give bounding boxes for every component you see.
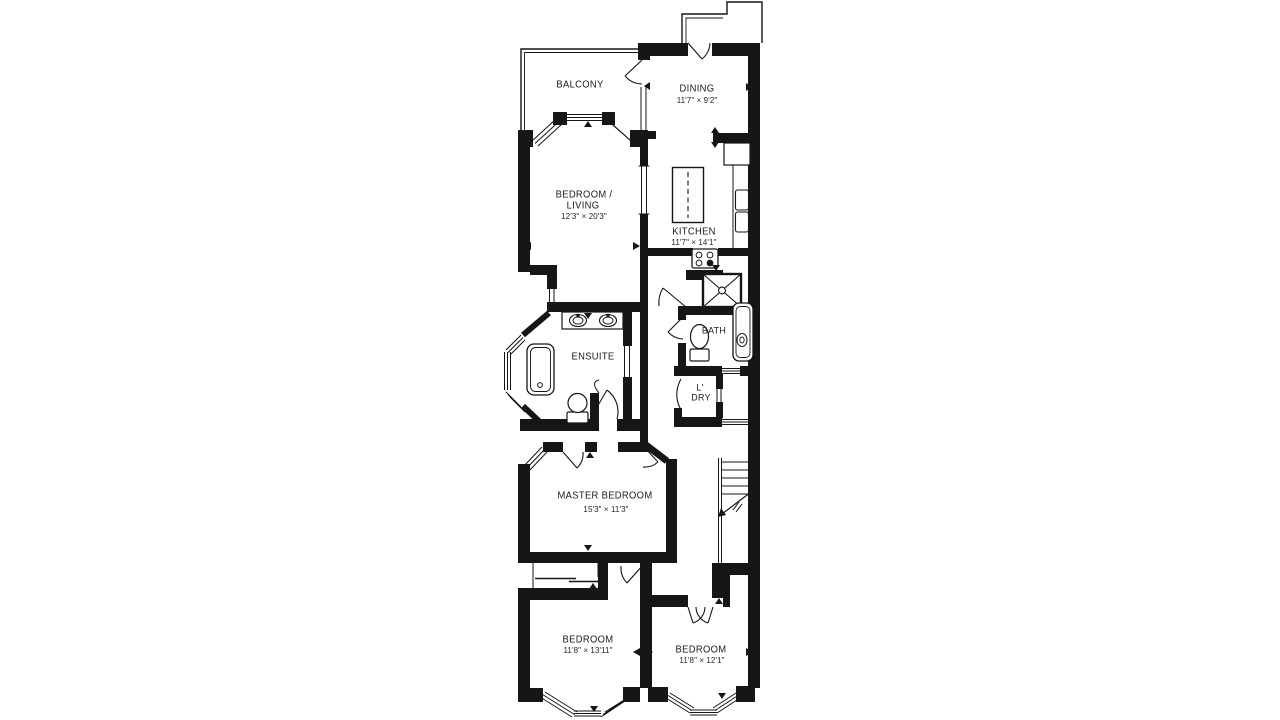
refrigerator: [724, 143, 750, 165]
room-label-ensuite: ENSUITE: [571, 352, 614, 363]
room-label-bath: BATH: [702, 326, 726, 337]
ensuite-vanity: [562, 312, 623, 329]
floor-plan: BALCONY DINING 11'7" × 9'2" BEDROOM / LI…: [0, 0, 1280, 720]
room-dims-kitchen: 11'7" × 14'1": [671, 237, 716, 247]
room-dims-bedroom-3: 11'8" × 12'1": [679, 655, 724, 665]
room-label-bedroom-2: BEDROOM: [563, 635, 614, 646]
ensuite-bathtub: [527, 344, 554, 395]
ensuite-toilet: [567, 394, 588, 424]
direction-markers: [522, 82, 753, 712]
entry-porch: [682, 2, 762, 43]
elevator-shaft: [703, 274, 741, 307]
floor-plan-drawing: [0, 0, 1280, 720]
room-dims-dining: 11'7" × 9'2": [677, 95, 718, 105]
room-label-bedroom-living-line1: BEDROOM /: [556, 190, 613, 201]
room-label-master-bedroom: MASTER BEDROOM: [558, 491, 653, 502]
room-label-laundry-line2: DRY: [691, 393, 711, 404]
room-dims-bedroom-2: 11'8" × 13'11": [563, 645, 612, 655]
room-dims-master-bedroom: 15'3" × 11'3": [583, 504, 628, 514]
room-label-bedroom-living-line2: LIVING: [567, 201, 600, 212]
bath-bathtub: [733, 303, 753, 361]
room-label-balcony: BALCONY: [556, 80, 603, 91]
room-dims-bedroom-living: 12'3" × 20'3": [561, 211, 607, 221]
closet-sliding-doors: [533, 563, 598, 588]
kitchen-island: [673, 168, 704, 223]
room-label-dining: DINING: [680, 84, 715, 95]
room-label-kitchen: KITCHEN: [672, 227, 716, 238]
kitchen-sink: [736, 190, 749, 232]
room-label-bedroom-3: BEDROOM: [676, 645, 727, 656]
